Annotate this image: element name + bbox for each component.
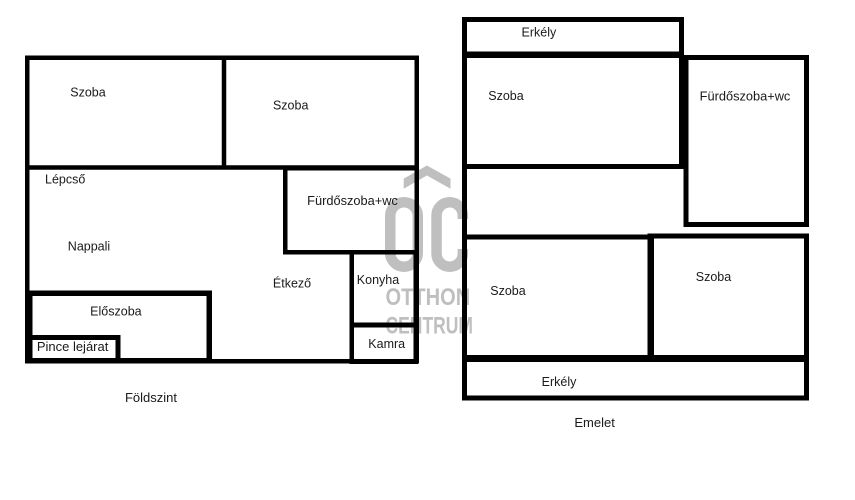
svg-text:Szoba: Szoba <box>488 89 523 103</box>
svg-text:Fürdőszoba+wc: Fürdőszoba+wc <box>700 89 791 104</box>
svg-text:Előszoba: Előszoba <box>90 304 141 318</box>
svg-text:Emelet: Emelet <box>574 415 615 430</box>
svg-text:Szoba: Szoba <box>273 99 308 113</box>
svg-text:OTTHON: OTTHON <box>386 284 471 311</box>
svg-text:Lépcső: Lépcső <box>45 173 85 187</box>
svg-text:Szoba: Szoba <box>490 284 525 298</box>
svg-text:Kamra: Kamra <box>368 337 405 351</box>
svg-text:Erkély: Erkély <box>522 25 557 39</box>
svg-text:Fürdőszoba+wc: Fürdőszoba+wc <box>307 193 398 208</box>
svg-text:Földszint: Földszint <box>125 390 177 405</box>
svg-text:Pince lejárat: Pince lejárat <box>37 339 109 354</box>
svg-text:Erkély: Erkély <box>542 375 577 389</box>
svg-text:Konyha: Konyha <box>357 273 399 287</box>
svg-text:Nappali: Nappali <box>68 240 110 254</box>
svg-text:Szoba: Szoba <box>696 270 731 284</box>
svg-text:Étkező: Étkező <box>273 276 311 291</box>
svg-text:Szoba: Szoba <box>70 86 105 100</box>
